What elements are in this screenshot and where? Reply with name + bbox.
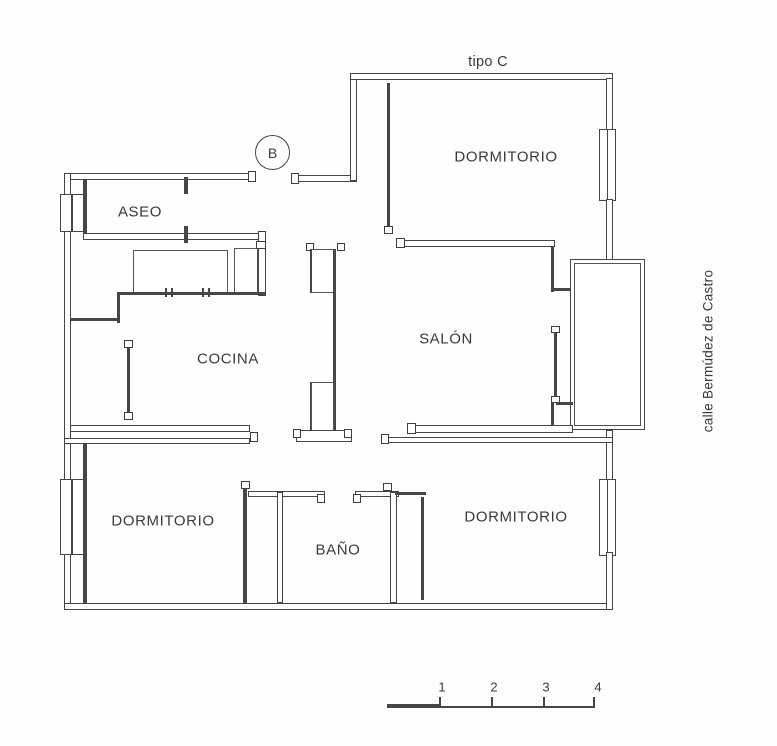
wall-segment bbox=[310, 249, 312, 293]
balcony-door-line bbox=[554, 330, 557, 400]
scale-tick bbox=[593, 697, 595, 706]
door-jamb bbox=[381, 434, 389, 444]
wall-segment bbox=[350, 73, 613, 80]
wall-segment bbox=[551, 247, 554, 292]
scale-number: 1 bbox=[438, 680, 445, 695]
wall-segment bbox=[350, 73, 357, 181]
wall-stub bbox=[184, 226, 188, 243]
door-jamb bbox=[384, 226, 393, 234]
wall-segment bbox=[83, 233, 265, 240]
wall-segment bbox=[390, 492, 397, 603]
scale-number: 3 bbox=[542, 680, 549, 695]
wall-segment bbox=[277, 492, 283, 603]
window bbox=[60, 194, 84, 232]
door-jamb bbox=[241, 481, 250, 489]
room-label-dormitorio-left: DORMITORIO bbox=[111, 513, 214, 530]
kitchen-appliance bbox=[234, 248, 258, 293]
wall-segment bbox=[70, 318, 120, 321]
scale-number: 4 bbox=[594, 680, 601, 695]
room-label-dormitorio-top: DORMITORIO bbox=[454, 149, 557, 166]
wall-segment bbox=[83, 444, 87, 603]
wall-segment bbox=[64, 603, 613, 610]
scale-tick bbox=[491, 697, 493, 706]
wall-segment bbox=[556, 402, 573, 405]
scale-tick bbox=[543, 697, 545, 706]
stair-core-letter: B bbox=[268, 145, 277, 161]
stair-core-badge: B bbox=[255, 135, 290, 170]
balcony-inner-line bbox=[574, 263, 641, 426]
street-name-label: calle Bermúdez de Castro bbox=[701, 270, 716, 433]
scale-number: 2 bbox=[490, 680, 497, 695]
wall-segment bbox=[383, 437, 613, 443]
door-jamb bbox=[124, 340, 133, 348]
wall-segment bbox=[387, 83, 390, 228]
door-jamb bbox=[293, 429, 301, 438]
door-jamb bbox=[396, 238, 405, 248]
wall-segment bbox=[258, 244, 266, 296]
wall-segment bbox=[117, 292, 265, 295]
shaft-box bbox=[311, 249, 334, 293]
wall-segment bbox=[64, 173, 256, 180]
door-jamb bbox=[337, 243, 345, 251]
wall-stub bbox=[184, 177, 188, 194]
door-jamb bbox=[248, 171, 256, 182]
door-jamb bbox=[353, 494, 361, 503]
closet-line bbox=[395, 492, 426, 495]
door-jamb bbox=[344, 429, 352, 438]
floor-plan: tipo C B calle Bermúdez de Castro ASEO D… bbox=[0, 0, 777, 746]
window bbox=[60, 479, 84, 555]
door-jamb bbox=[551, 326, 560, 333]
wall-segment bbox=[70, 425, 250, 432]
room-label-bano: BAÑO bbox=[316, 542, 361, 559]
door-jamb bbox=[250, 432, 258, 442]
room-label-dormitorio-right: DORMITORIO bbox=[464, 509, 567, 526]
wall-segment bbox=[410, 425, 573, 433]
wall-segment bbox=[127, 348, 130, 413]
door-jamb bbox=[317, 494, 325, 503]
wall-segment bbox=[293, 175, 357, 182]
wall-segment bbox=[606, 199, 613, 261]
wall-segment bbox=[248, 491, 325, 497]
wall-segment bbox=[398, 240, 555, 247]
wall-segment bbox=[64, 438, 250, 444]
door-jamb bbox=[124, 412, 133, 420]
plan-type-title: tipo C bbox=[468, 54, 508, 70]
scale-bar bbox=[387, 706, 595, 708]
balcony bbox=[570, 259, 645, 430]
scale-tick bbox=[439, 697, 441, 706]
closet-line bbox=[421, 497, 424, 600]
shaft-box bbox=[311, 382, 334, 433]
window bbox=[599, 129, 616, 201]
room-label-cocina: COCINA bbox=[197, 351, 259, 368]
room-label-aseo: ASEO bbox=[118, 204, 162, 221]
door-jamb bbox=[256, 241, 266, 249]
room-label-salon: SALÓN bbox=[419, 331, 473, 348]
wall-segment bbox=[606, 78, 613, 135]
wall-segment bbox=[243, 485, 247, 603]
door-jamb bbox=[407, 423, 416, 434]
door-jamb bbox=[291, 173, 299, 184]
wall-segment bbox=[606, 552, 613, 610]
window bbox=[599, 479, 616, 556]
kitchen-counter bbox=[133, 250, 228, 293]
door-jamb bbox=[383, 483, 392, 491]
